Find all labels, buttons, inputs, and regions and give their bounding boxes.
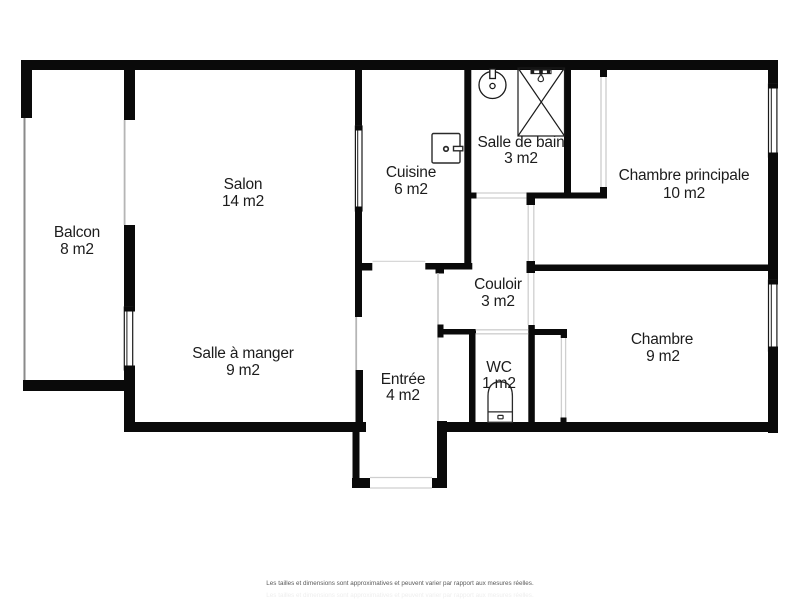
svg-text:Les tailles et dimensions sont: Les tailles et dimensions sont approxima… [266, 580, 534, 587]
svg-text:Les tailles et dimensions sont: Les tailles et dimensions sont approxima… [266, 592, 534, 599]
svg-text:Chambre: Chambre [631, 331, 693, 348]
svg-text:9 m2: 9 m2 [646, 348, 680, 365]
svg-text:Salle à manger: Salle à manger [192, 345, 293, 362]
svg-text:Couloir: Couloir [474, 276, 522, 293]
svg-text:Chambre principale: Chambre principale [619, 167, 750, 184]
svg-text:3 m2: 3 m2 [504, 150, 538, 167]
svg-text:Balcon: Balcon [54, 224, 100, 241]
svg-text:WC: WC [486, 359, 511, 376]
svg-text:14 m2: 14 m2 [222, 193, 264, 210]
svg-text:4 m2: 4 m2 [386, 387, 420, 404]
svg-text:9 m2: 9 m2 [226, 362, 260, 379]
svg-text:10 m2: 10 m2 [663, 185, 705, 202]
svg-text:Salon: Salon [224, 176, 263, 193]
svg-text:Entrée: Entrée [381, 371, 425, 388]
svg-text:6 m2: 6 m2 [394, 181, 428, 198]
svg-text:8 m2: 8 m2 [60, 241, 94, 258]
svg-text:1 m2: 1 m2 [482, 375, 516, 392]
svg-text:Salle de bain: Salle de bain [477, 134, 564, 151]
svg-text:3 m2: 3 m2 [481, 293, 515, 310]
svg-text:Cuisine: Cuisine [386, 164, 436, 181]
